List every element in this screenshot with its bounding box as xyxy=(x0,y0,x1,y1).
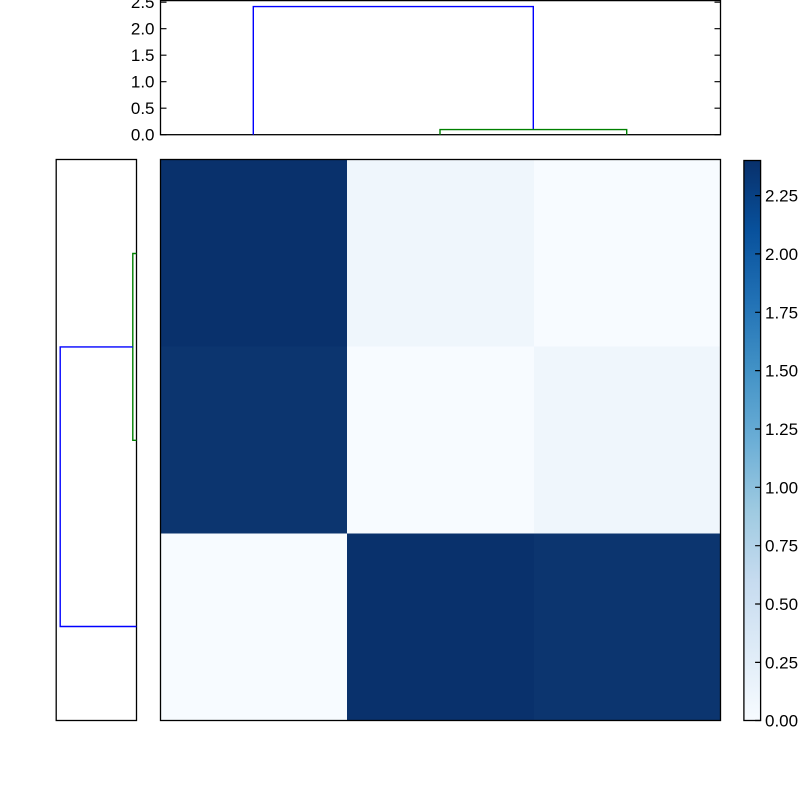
svg-text:0.5: 0.5 xyxy=(131,99,155,118)
svg-text:1.75: 1.75 xyxy=(765,303,798,322)
svg-text:2.0: 2.0 xyxy=(131,20,155,39)
svg-text:0.50: 0.50 xyxy=(765,595,798,614)
svg-text:1.00: 1.00 xyxy=(765,478,798,497)
svg-text:1.0: 1.0 xyxy=(131,73,155,92)
svg-text:1.50: 1.50 xyxy=(765,362,798,381)
svg-text:2.25: 2.25 xyxy=(765,187,798,206)
svg-text:2.5: 2.5 xyxy=(131,0,155,12)
svg-text:0.0: 0.0 xyxy=(131,126,155,145)
svg-text:1.5: 1.5 xyxy=(131,46,155,65)
svg-text:0.75: 0.75 xyxy=(765,537,798,556)
svg-text:0.00: 0.00 xyxy=(765,712,798,731)
svg-text:2.00: 2.00 xyxy=(765,245,798,264)
svg-text:1.25: 1.25 xyxy=(765,420,798,439)
svg-text:0.25: 0.25 xyxy=(765,653,798,672)
